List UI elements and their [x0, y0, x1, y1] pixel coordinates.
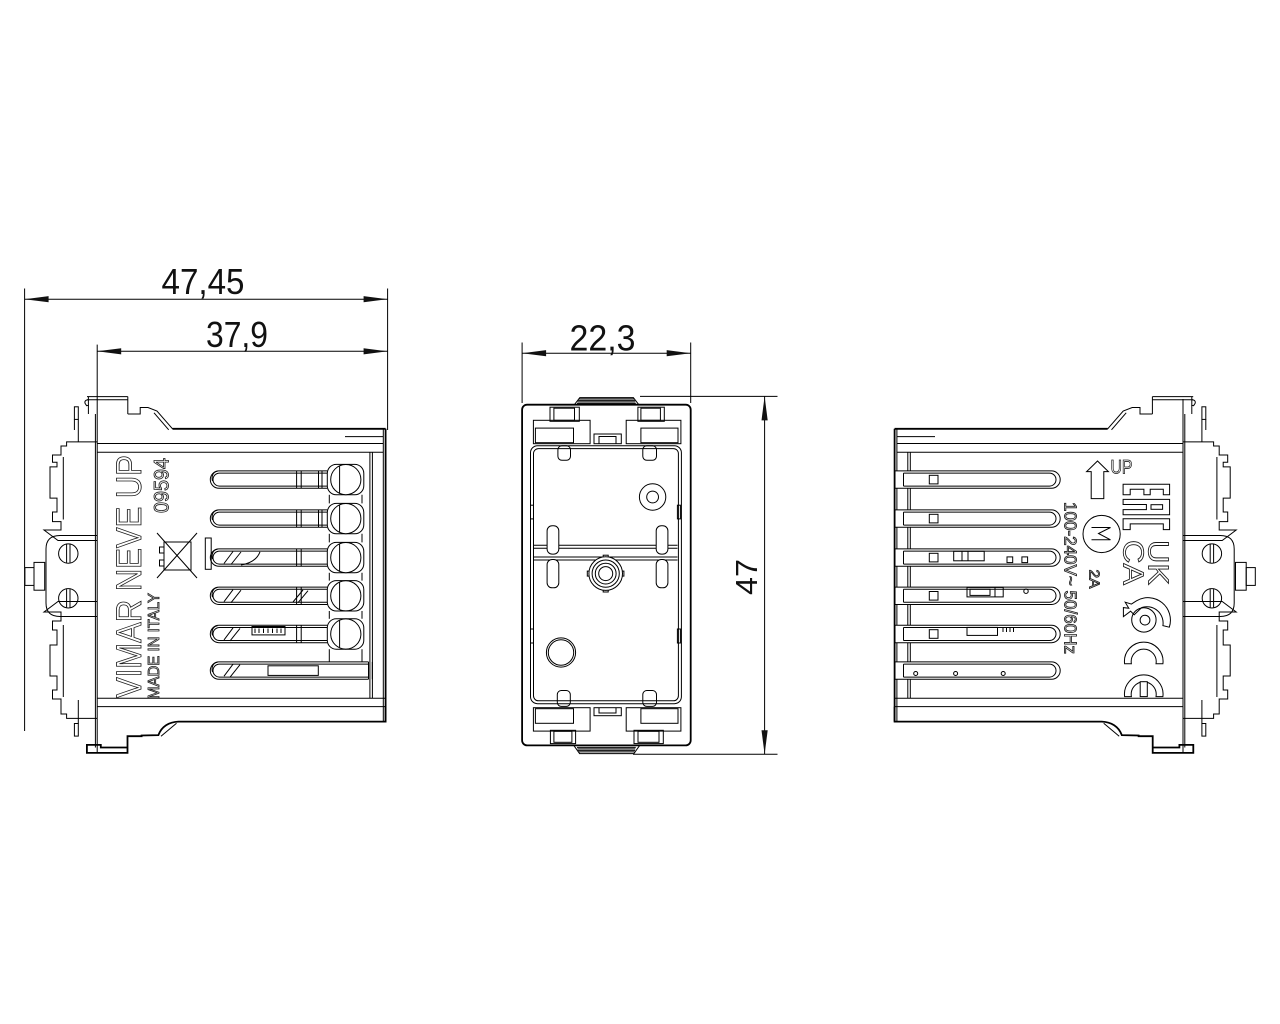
svg-text:100-240V~ 50/60Hz: 100-240V~ 50/60Hz	[1061, 502, 1081, 654]
svg-text:UP: UP	[1111, 457, 1133, 479]
svg-text:2A: 2A	[1086, 570, 1102, 589]
svg-text:09594: 09594	[151, 458, 174, 513]
svg-text:37,9: 37,9	[206, 314, 268, 355]
svg-text:VIMAR NEVE UP: VIMAR NEVE UP	[110, 455, 149, 698]
svg-text:47: 47	[729, 559, 764, 595]
svg-text:CA: CA	[1117, 540, 1149, 586]
svg-text:47,45: 47,45	[162, 261, 245, 302]
svg-text:22,3: 22,3	[570, 318, 636, 359]
svg-text:MADE IN ITALY: MADE IN ITALY	[146, 593, 163, 699]
